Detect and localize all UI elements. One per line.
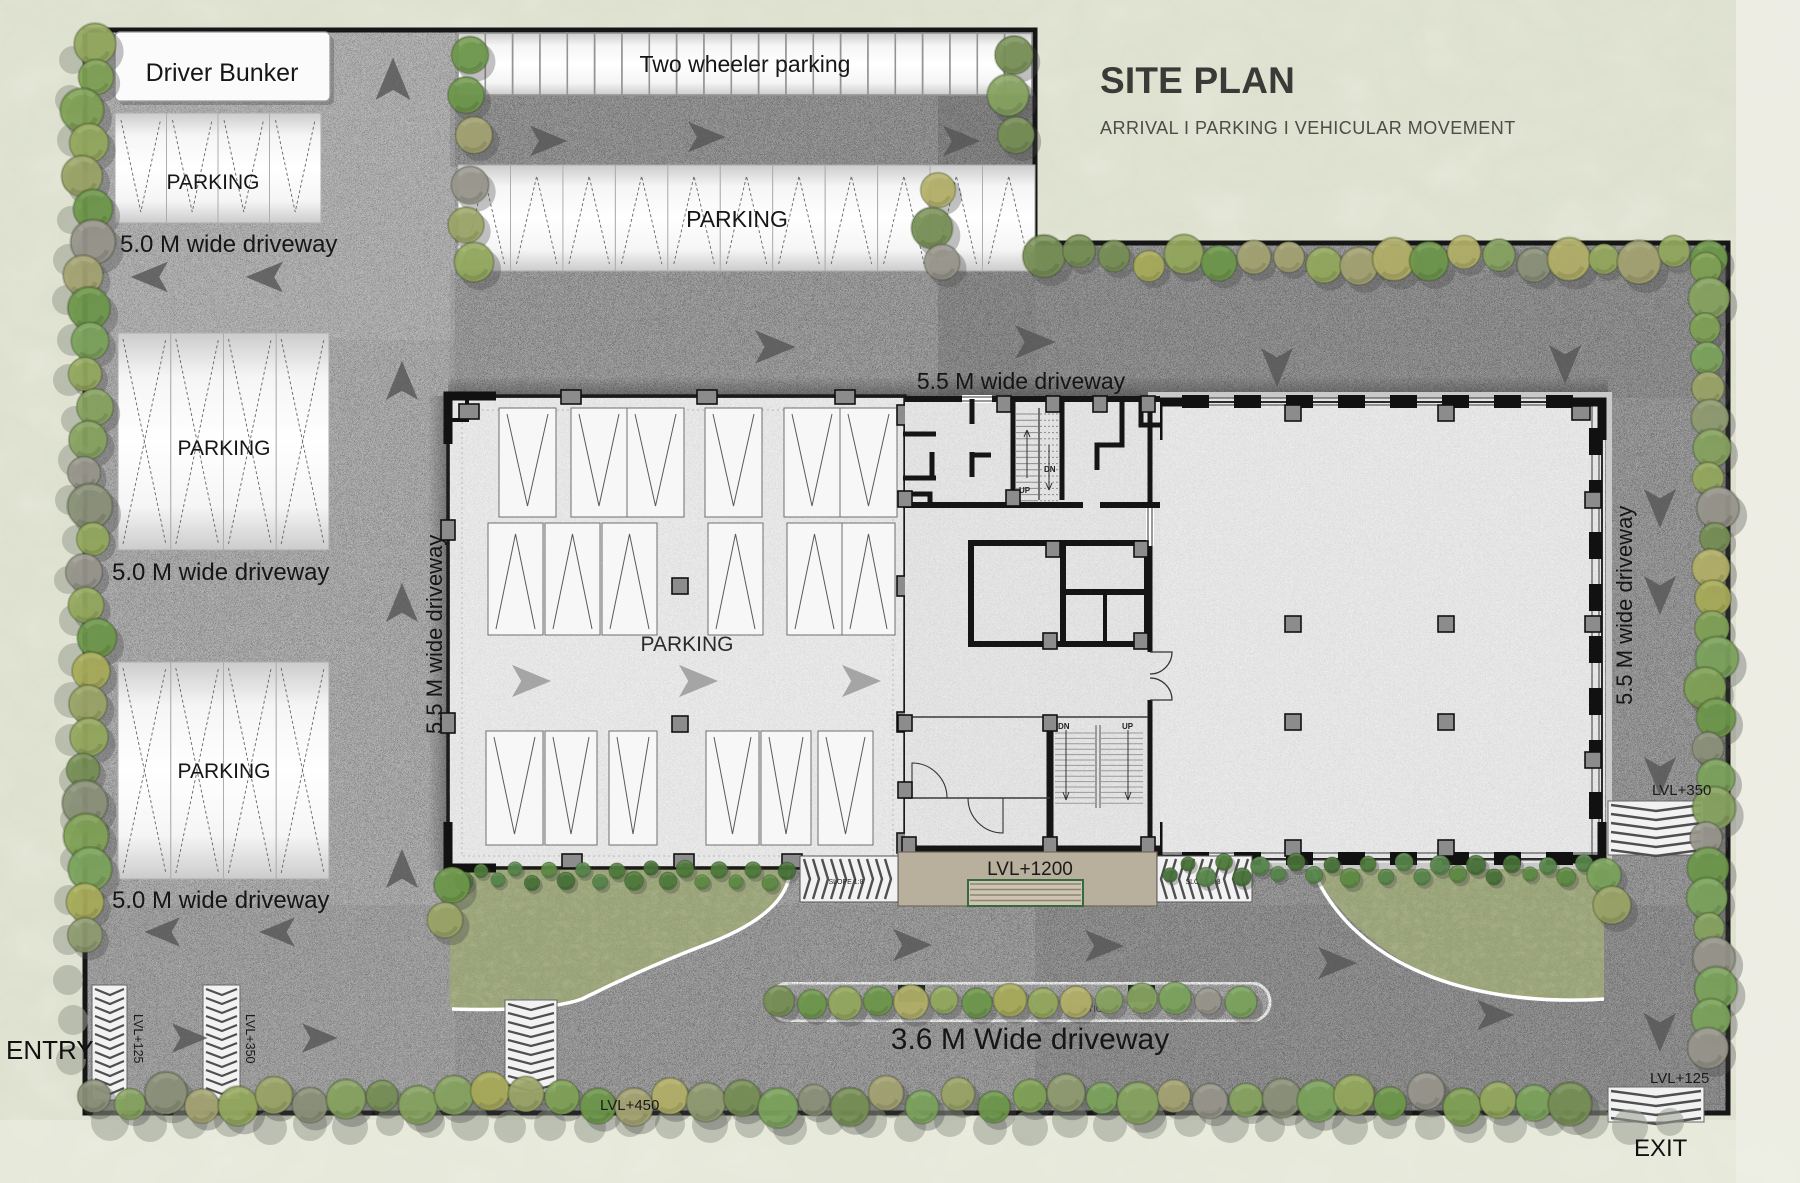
svg-text:Two wheeler parking: Two wheeler parking	[640, 51, 851, 77]
svg-text:LVL+125: LVL+125	[1650, 1070, 1709, 1087]
svg-text:EXIT: EXIT	[1634, 1135, 1688, 1162]
svg-text:Driver Bunker: Driver Bunker	[146, 59, 299, 87]
svg-text:LVL+350: LVL+350	[1652, 782, 1711, 799]
svg-text:ENTRY: ENTRY	[6, 1035, 94, 1065]
svg-text:5.0 M wide driveway: 5.0 M wide driveway	[112, 559, 329, 586]
svg-text:DN: DN	[1044, 465, 1056, 474]
svg-text:LVL+450: LVL+450	[600, 1097, 659, 1114]
svg-text:5.5 M wide driveway: 5.5 M wide driveway	[1612, 506, 1637, 705]
svg-text:PARKING: PARKING	[686, 206, 788, 232]
svg-text:DN: DN	[1058, 722, 1070, 731]
svg-text:PARKING: PARKING	[167, 171, 260, 194]
svg-text:UP: UP	[1122, 722, 1134, 731]
svg-text:LVL+125: LVL+125	[131, 1014, 145, 1064]
svg-text:3.6 M Wide driveway: 3.6 M Wide driveway	[891, 1023, 1169, 1056]
svg-text:PARKING: PARKING	[641, 633, 734, 656]
svg-text:5.0 M wide driveway: 5.0 M wide driveway	[112, 887, 329, 914]
svg-text:SITE PLAN: SITE PLAN	[1100, 60, 1295, 101]
svg-text:ARRIVAL I PARKING I VEHICULAR: ARRIVAL I PARKING I VEHICULAR MOVEMENT	[1100, 118, 1516, 138]
svg-text:5.5 M wide driveway: 5.5 M wide driveway	[917, 368, 1126, 394]
svg-text:LVL+1200: LVL+1200	[987, 859, 1073, 880]
svg-text:PARKING: PARKING	[178, 437, 271, 460]
svg-text:LVL+350: LVL+350	[243, 1014, 257, 1064]
svg-text:5.0 M wide driveway: 5.0 M wide driveway	[120, 231, 337, 258]
svg-text:5.5 M wide driveway: 5.5 M wide driveway	[422, 535, 447, 734]
svg-text:SLOPE 1:8: SLOPE 1:8	[828, 879, 863, 886]
svg-text:PARKING: PARKING	[178, 760, 271, 783]
